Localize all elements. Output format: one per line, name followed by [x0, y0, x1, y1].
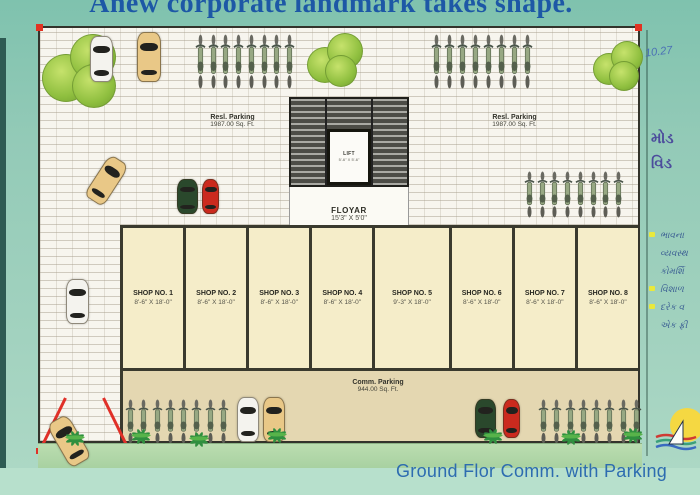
scooter-icon: [246, 34, 257, 89]
palm-bush-icon: [64, 431, 86, 446]
scooter-icon: [431, 34, 442, 89]
scooter-icon: [538, 399, 549, 444]
label-text: Comm. Parking: [293, 379, 463, 386]
bullet-marker: [649, 304, 655, 309]
scooter-icon: [233, 34, 244, 89]
car-icon: [237, 397, 259, 442]
scooter-icon: [537, 171, 548, 218]
car-icon: [503, 399, 520, 438]
scooter-icon: [271, 34, 282, 89]
shop-unit: SHOP NO. 48'-6" X 18'-0": [312, 228, 375, 368]
scooter-icon: [522, 34, 533, 89]
shop-unit: SHOP NO. 68'-6" X 18'-0": [452, 228, 515, 368]
palm-spot: [188, 432, 210, 447]
floyar-dims: 15'3" X 5'0": [331, 215, 367, 222]
shops-row: SHOP NO. 18'-6" X 18'-0" SHOP NO. 28'-6"…: [120, 225, 638, 371]
lift-dims: 5'-6" X 5'-6": [339, 158, 360, 163]
palm-bush-icon: [560, 430, 582, 445]
scooter-icon: [613, 171, 624, 218]
car-icon: [202, 179, 219, 214]
brochure-page: Anew corporate landmark takes shape. SHO…: [0, 0, 700, 495]
note-item: વ્યવસ્થ: [649, 248, 700, 259]
note-item: વિશાળ: [649, 284, 700, 295]
floyar-area: FLOYAR 15'3" X 5'0": [289, 187, 409, 225]
note-text: એક ફ્રી: [660, 320, 687, 330]
label-area: 1987.00 Sq. Ft.: [457, 121, 572, 128]
stair-flight: [327, 99, 371, 129]
palm-spot: [64, 431, 86, 446]
note-text: વ્યવસ્થ: [660, 248, 688, 258]
note-item: એક ફ્રી: [649, 320, 700, 331]
shop-unit: SHOP NO. 78'-6" X 18'-0": [515, 228, 578, 368]
scooter-icon: [220, 34, 231, 89]
shop-name: SHOP NO. 3: [259, 290, 299, 297]
scooter-icon: [457, 34, 468, 89]
shop-name: SHOP NO. 2: [196, 290, 236, 297]
scooter-icon: [588, 171, 599, 218]
scooter-icon: [600, 171, 611, 218]
note-item: કોમર્શિ: [649, 266, 700, 277]
shop-dims: 8'-6" X 18'-0": [324, 299, 361, 306]
label-area: 1987.00 Sq. Ft.: [175, 121, 290, 128]
heading-line: મોડ: [651, 126, 674, 151]
resi-parking-label-right: Resl. Parking 1987.00 Sq. Ft.: [457, 114, 572, 128]
scooter-icon: [208, 34, 219, 89]
gujarati-heading: મોડ વિડ: [651, 126, 674, 176]
scooter-icon: [524, 171, 535, 218]
shop-name: SHOP NO. 7: [525, 290, 565, 297]
car-icon: [177, 179, 198, 214]
resi-parking-label-left: Resl. Parking 1987.00 Sq. Ft.: [175, 114, 290, 128]
scooter-icon: [483, 34, 494, 89]
shop-unit: SHOP NO. 18'-6" X 18'-0": [123, 228, 186, 368]
heading-line: વિડ: [651, 151, 674, 176]
palm-spot: [130, 429, 152, 444]
comm-parking-label: Comm. Parking 944.00 Sq. Ft.: [293, 379, 463, 393]
bullet-marker: [649, 232, 655, 237]
label-text: Resl. Parking: [457, 114, 572, 121]
shop-unit: SHOP NO. 59'-3" X 18'-0": [375, 228, 451, 368]
floor-plan: SHOP NO. 18'-6" X 18'-0" SHOP NO. 28'-6"…: [38, 26, 640, 443]
note-text: કોમર્શિ: [660, 266, 684, 276]
builder-logo-icon: [652, 404, 700, 461]
corner-marker: [36, 24, 43, 31]
shop-dims: 8'-6" X 18'-0": [261, 299, 298, 306]
scooter-row: [524, 171, 624, 218]
shop-dims: 8'-6" X 18'-0": [526, 299, 563, 306]
palm-bush-icon: [188, 432, 210, 447]
shop-name: SHOP NO. 6: [462, 290, 502, 297]
page-edge: [0, 38, 6, 495]
note-item: ભાવના: [649, 230, 700, 241]
page-fold: [646, 30, 648, 456]
shop-name: SHOP NO. 8: [588, 290, 628, 297]
palm-spot: [560, 430, 582, 445]
lift: LIFT 5'-6" X 5'-6": [327, 129, 371, 185]
scooter-icon: [259, 34, 270, 89]
scooter-icon: [604, 399, 615, 444]
shop-dims: 8'-6" X 18'-0": [134, 299, 171, 306]
palm-spot: [482, 429, 504, 444]
palm-bush-icon: [266, 428, 288, 443]
scooter-row: [431, 34, 533, 89]
note-item: દરેક વ: [649, 302, 700, 313]
staircase: LIFT 5'-6" X 5'-6": [289, 97, 409, 187]
handwritten-note: 10.27: [644, 44, 673, 59]
car-icon: [84, 154, 130, 208]
scooter-icon: [496, 34, 507, 89]
shop-name: SHOP NO. 1: [133, 290, 173, 297]
shop-unit: SHOP NO. 38'-6" X 18'-0": [249, 228, 312, 368]
scooter-icon: [575, 171, 586, 218]
car-icon: [137, 32, 161, 82]
floyar-label: FLOYAR: [331, 206, 367, 215]
shop-unit: SHOP NO. 28'-6" X 18'-0": [186, 228, 249, 368]
notes-list: ભાવના વ્યવસ્થ કોમર્શિ વિશાળ દરેક વ એક ફ્…: [649, 230, 700, 338]
palm-spot: [266, 428, 288, 443]
note-text: વિશાળ: [660, 284, 684, 294]
scooter-icon: [470, 34, 481, 89]
palm-spot: [622, 428, 644, 443]
label-area: 944.00 Sq. Ft.: [293, 386, 463, 393]
scooter-icon: [284, 34, 295, 89]
scooter-icon: [509, 34, 520, 89]
tree-icon: [593, 41, 643, 89]
shop-name: SHOP NO. 5: [392, 290, 432, 297]
corner-marker: [635, 24, 642, 31]
tree-icon: [307, 33, 363, 87]
shop-name: SHOP NO. 4: [322, 290, 362, 297]
shop-dims: 9'-3" X 18'-0": [393, 299, 430, 306]
car-icon: [90, 36, 113, 82]
scooter-icon: [152, 399, 163, 444]
label-text: Resl. Parking: [175, 114, 290, 121]
lift-label: LIFT: [343, 151, 355, 157]
headline: Anew corporate landmark takes shape.: [28, 0, 634, 20]
scooter-icon: [165, 399, 176, 444]
scooter-icon: [591, 399, 602, 444]
shop-dims: 8'-6" X 18'-0": [463, 299, 500, 306]
stair-flight: [291, 99, 327, 185]
palm-bush-icon: [622, 428, 644, 443]
note-text: દરેક વ: [660, 302, 684, 312]
scooter-icon: [444, 34, 455, 89]
shop-dims: 8'-6" X 18'-0": [197, 299, 234, 306]
bullet-marker: [649, 286, 655, 291]
shop-unit: SHOP NO. 88'-6" X 18'-0": [578, 228, 638, 368]
scooter-icon: [562, 171, 573, 218]
scooter-icon: [549, 171, 560, 218]
scooter-icon: [195, 34, 206, 89]
scooter-icon: [218, 399, 229, 444]
scooter-row: [195, 34, 295, 89]
palm-bush-icon: [130, 429, 152, 444]
shop-dims: 8'-6" X 18'-0": [589, 299, 626, 306]
caption: Ground Flor Comm. with Parking: [396, 461, 667, 482]
palm-bush-icon: [482, 429, 504, 444]
stair-flight: [371, 99, 407, 185]
note-text: ભાવના: [660, 230, 684, 240]
car-icon: [66, 279, 89, 324]
